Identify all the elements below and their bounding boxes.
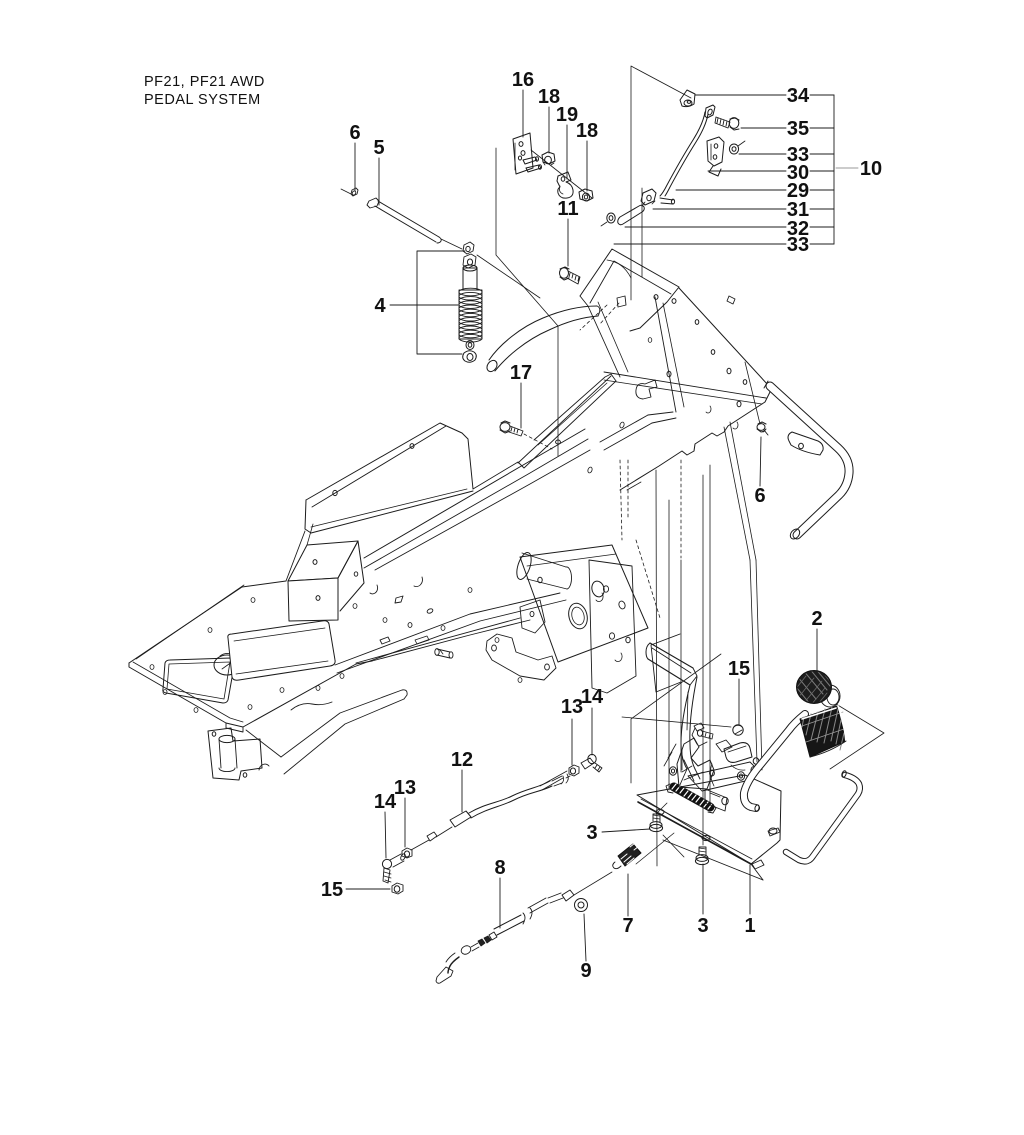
svg-text:5: 5 [373,137,384,159]
svg-text:3: 3 [586,822,597,844]
svg-text:33: 33 [787,234,809,256]
svg-text:8: 8 [494,857,505,879]
svg-text:7: 7 [622,915,633,937]
svg-text:4: 4 [374,295,386,317]
svg-text:15: 15 [728,658,750,680]
svg-text:11: 11 [557,198,578,220]
svg-text:3: 3 [697,915,708,937]
svg-text:13: 13 [561,696,583,718]
svg-text:15: 15 [321,879,343,901]
svg-text:19: 19 [556,104,578,126]
svg-text:PEDAL SYSTEM: PEDAL SYSTEM [144,92,261,108]
svg-text:14: 14 [581,686,604,708]
svg-text:17: 17 [510,362,532,384]
svg-text:1: 1 [744,915,755,937]
svg-text:12: 12 [451,749,473,771]
svg-text:13: 13 [394,777,416,799]
svg-text:10: 10 [860,158,882,180]
svg-text:34: 34 [787,85,810,107]
svg-text:9: 9 [580,960,591,982]
svg-text:18: 18 [576,120,598,142]
svg-text:14: 14 [374,791,397,813]
svg-text:16: 16 [512,69,534,91]
svg-text:6: 6 [754,485,765,507]
svg-text:6: 6 [349,122,360,144]
svg-text:2: 2 [811,608,822,630]
svg-text:35: 35 [787,118,809,140]
svg-text:PF21, PF21 AWD: PF21, PF21 AWD [144,74,265,90]
